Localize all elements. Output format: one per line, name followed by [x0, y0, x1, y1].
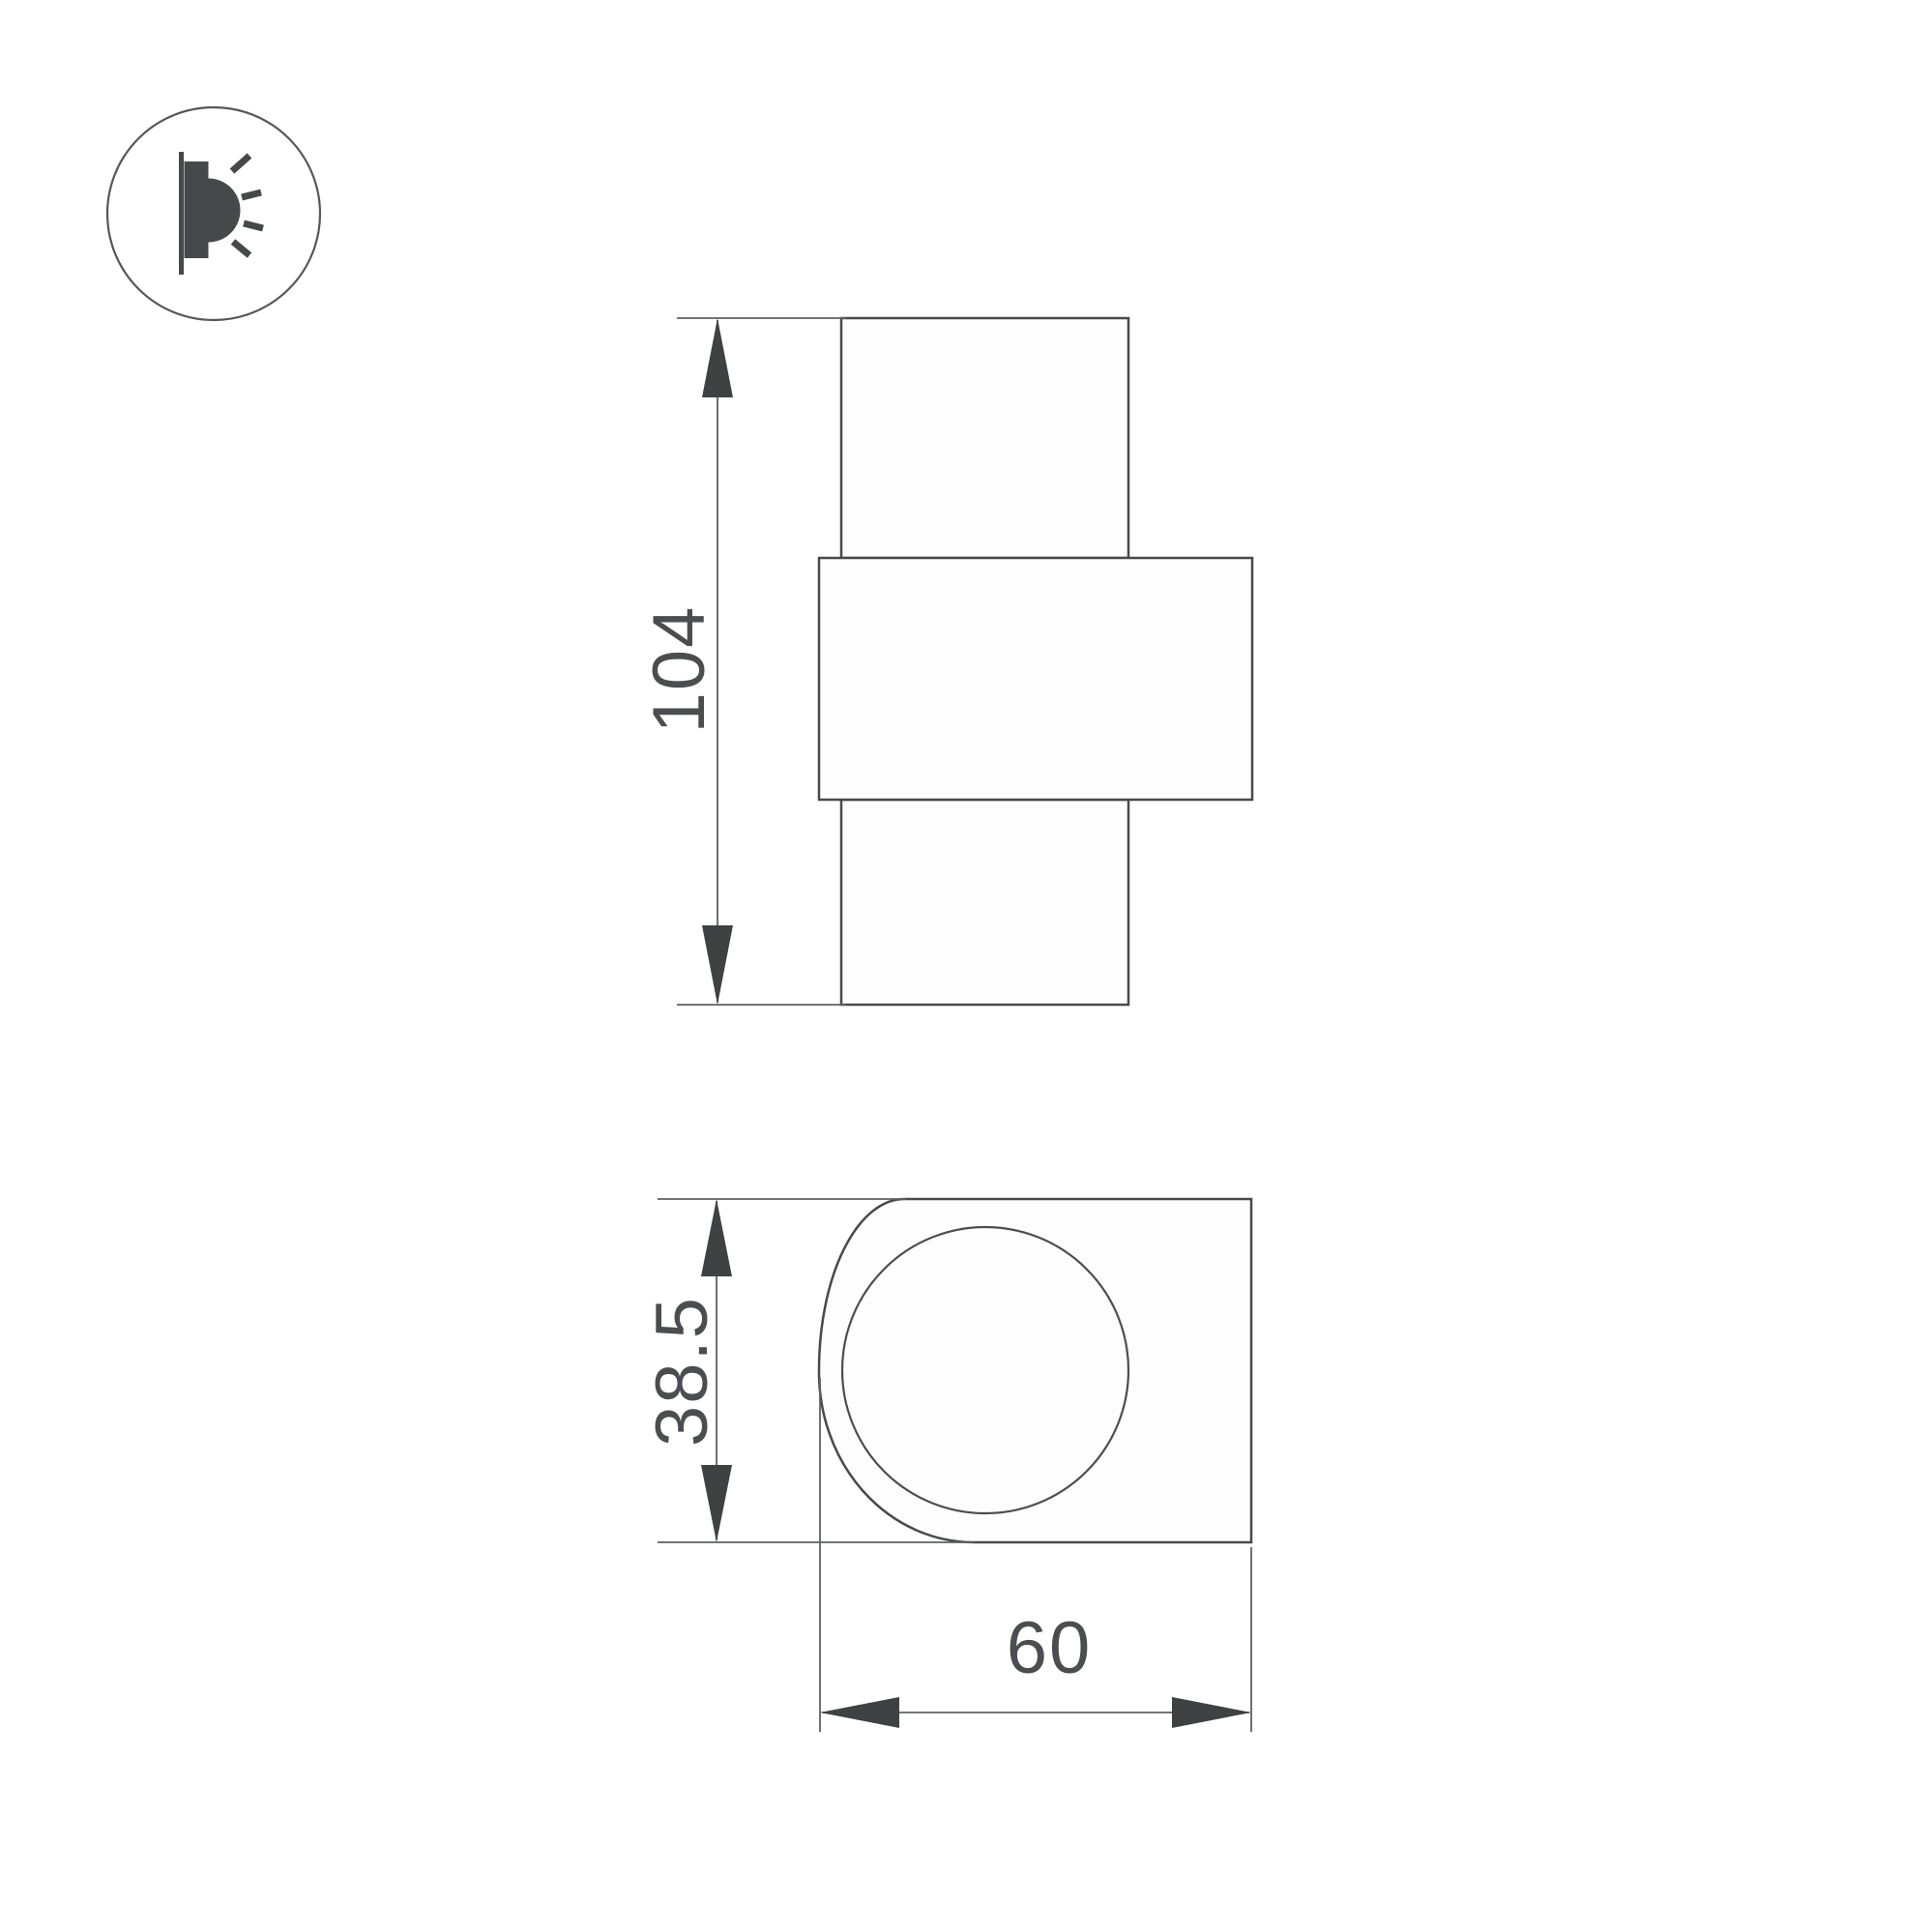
light-ray-icon — [242, 192, 261, 197]
arrowhead-left — [820, 1697, 899, 1728]
front-view-body-band — [819, 558, 1252, 800]
wall-lamp-icon — [107, 107, 320, 320]
top-view — [819, 1199, 1251, 1542]
top-view-housing — [819, 1199, 1251, 1542]
front-view — [819, 318, 1252, 1005]
arrowhead-down — [701, 1465, 732, 1542]
arrowhead-up — [702, 318, 733, 397]
arrowhead-right — [1172, 1697, 1251, 1728]
height-dimension-label: 104 — [638, 605, 720, 734]
front-view-top-cylinder — [841, 318, 1128, 558]
icon-light-dome — [209, 179, 241, 243]
arrowhead-up — [701, 1199, 732, 1276]
arrowhead-down — [702, 925, 733, 1005]
icon-lamp-body — [185, 161, 209, 258]
width-dimension-label: 60 — [1007, 1607, 1093, 1689]
light-ray-icon — [232, 156, 249, 171]
depth-dimension-label: 38.5 — [641, 1296, 723, 1447]
technical-drawing-canvas: 104 38.5 60 — [0, 0, 1932, 1932]
height-dimension: 104 — [638, 318, 846, 1005]
light-ray-icon — [233, 242, 249, 255]
front-view-bottom-cylinder — [841, 800, 1128, 1005]
light-ray-icon — [244, 223, 263, 228]
